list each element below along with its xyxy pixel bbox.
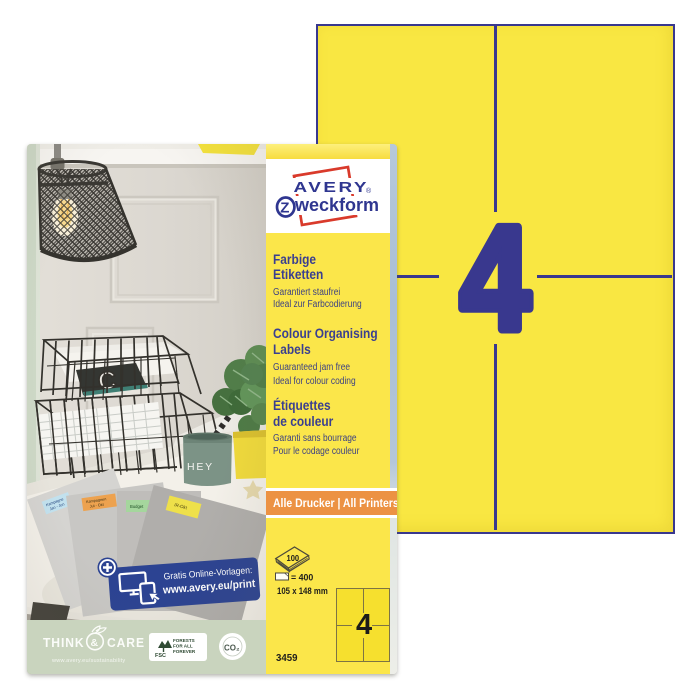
- svg-text:THINK: THINK: [43, 636, 85, 650]
- svg-text:Z: Z: [280, 200, 289, 217]
- svg-text:www.avery.eu/sustainability: www.avery.eu/sustainability: [51, 658, 125, 664]
- svg-text:FOR ALL: FOR ALL: [173, 644, 193, 649]
- svg-text:FORESTS: FORESTS: [173, 638, 195, 643]
- svg-text:100: 100: [287, 554, 300, 563]
- svg-text:= 400: = 400: [291, 572, 313, 582]
- svg-text:FOREVER: FOREVER: [173, 649, 196, 654]
- svg-text:4: 4: [460, 196, 530, 344]
- svg-text:AVERY: AVERY: [294, 179, 370, 196]
- svg-text:®: ®: [366, 187, 372, 195]
- svg-text:CO₂: CO₂: [224, 644, 240, 653]
- svg-text:CARE: CARE: [107, 636, 145, 650]
- svg-text:&: &: [91, 637, 99, 649]
- svg-text:weckform: weckform: [294, 195, 379, 215]
- svg-text:FSC: FSC: [155, 653, 166, 659]
